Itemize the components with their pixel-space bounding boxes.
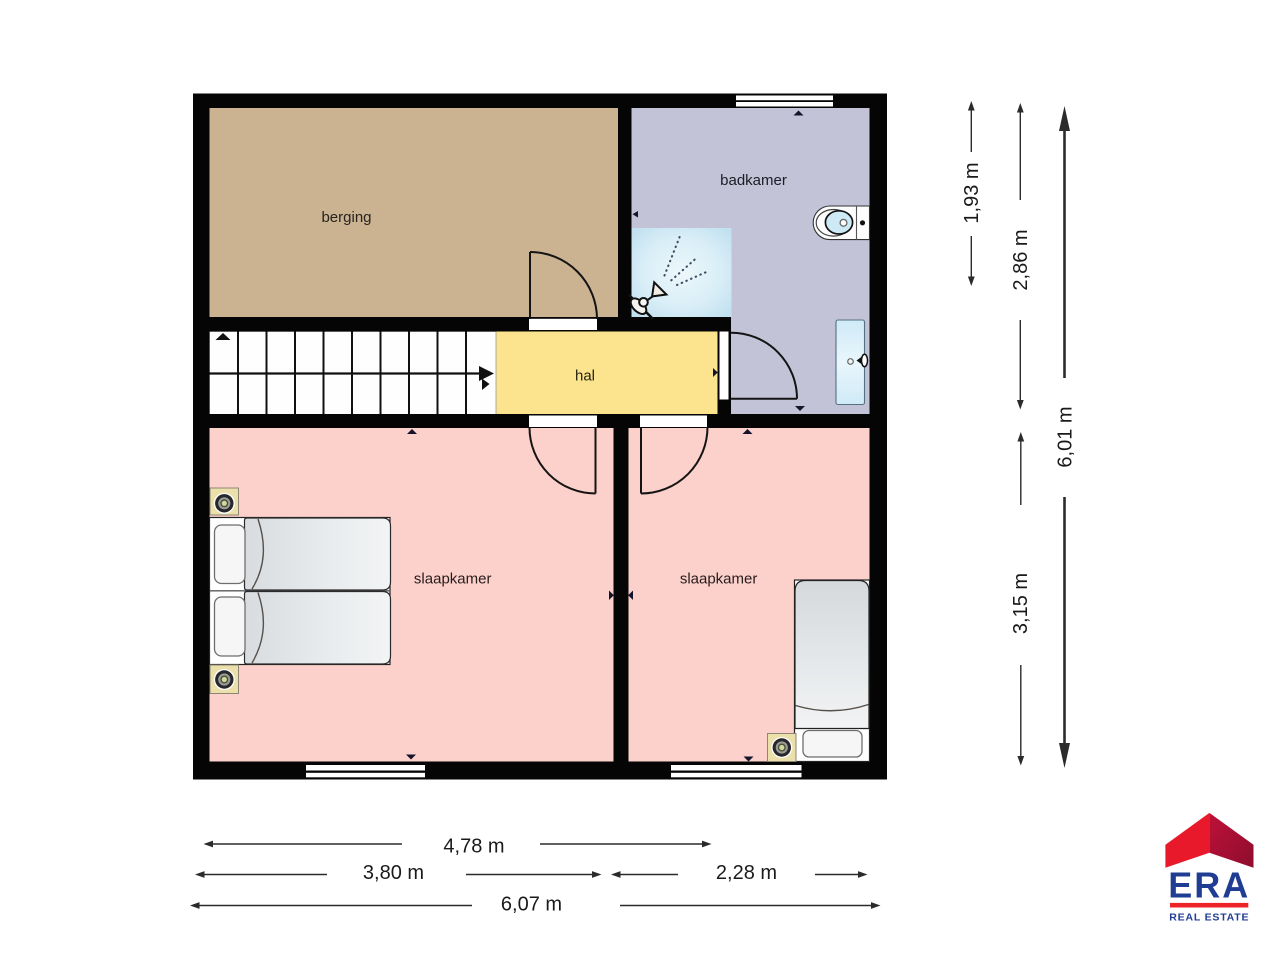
svg-text:6,01 m: 6,01 m <box>1055 406 1077 467</box>
svg-text:REAL ESTATE: REAL ESTATE <box>1169 912 1249 924</box>
svg-text:6,07 m: 6,07 m <box>501 894 562 916</box>
svg-text:berging: berging <box>321 209 371 226</box>
svg-text:hal: hal <box>575 368 595 385</box>
svg-text:3,15 m: 3,15 m <box>1010 573 1032 634</box>
svg-text:slaapkamer: slaapkamer <box>680 571 758 588</box>
svg-text:slaapkamer: slaapkamer <box>414 571 492 588</box>
svg-text:3,80 m: 3,80 m <box>363 862 424 884</box>
svg-text:badkamer: badkamer <box>720 172 787 189</box>
svg-text:2,28 m: 2,28 m <box>716 862 777 884</box>
svg-text:1,93 m: 1,93 m <box>961 162 983 223</box>
svg-text:2,86 m: 2,86 m <box>1010 229 1032 290</box>
svg-text:ERA: ERA <box>1168 865 1250 906</box>
svg-text:4,78 m: 4,78 m <box>443 836 504 858</box>
